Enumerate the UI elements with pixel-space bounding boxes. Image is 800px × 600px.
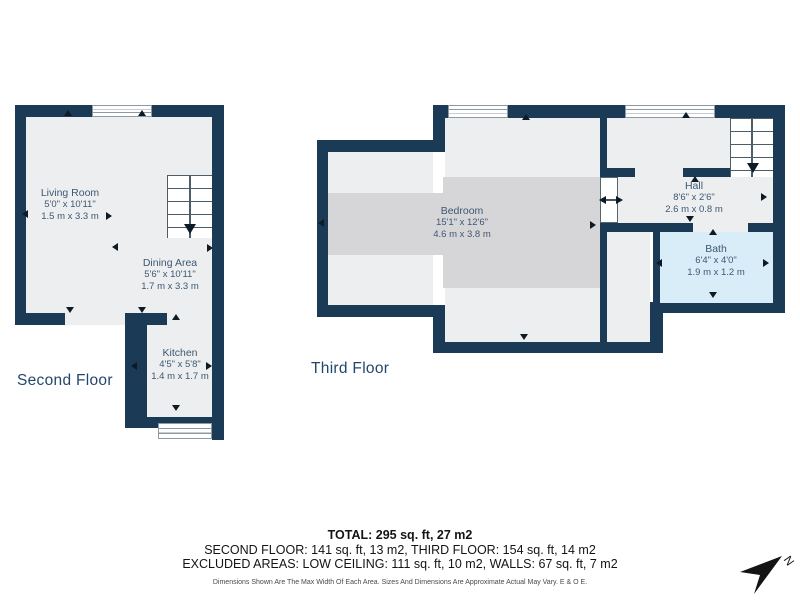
room-dim-imperial: 8'6" x 2'6" [665,192,723,204]
dimension-marker [318,219,324,227]
wall-segment [600,223,693,232]
dimension-marker [656,259,662,267]
dimension-marker [66,307,74,313]
dimension-marker [682,112,690,118]
room-name: Bedroom [433,205,491,217]
room-dim-metric: 2.6 m x 0.8 m [665,204,723,216]
floor-title-second: Second Floor [17,372,113,390]
low-ceiling-area [328,193,445,255]
room-dim-imperial: 15'1" x 12'6" [433,217,491,229]
dimension-marker [691,176,699,182]
room-label-living-room: Living Room 5'0" x 10'11" 1.5 m x 3.3 m [41,187,99,223]
window [158,423,212,439]
dimension-marker [207,244,213,252]
floor-area-door-opening [635,168,683,177]
floor-area-strip [607,232,650,342]
dimension-marker [206,362,212,370]
room-name: Living Room [41,187,99,199]
stairs-direction-arrow [184,224,196,234]
dimension-marker [22,210,28,218]
wall-segment [317,140,445,152]
sliding-door-arrow [599,194,623,206]
room-dim-metric: 1.4 m x 1.7 m [151,371,209,383]
dimension-marker [106,212,112,220]
room-dim-metric: 4.6 m x 3.8 m [433,229,491,241]
summary-total: TOTAL: 295 sq. ft, 27 m2 [0,528,800,543]
dimension-marker [131,362,137,370]
room-label-bedroom: Bedroom 15'1" x 12'6" 4.6 m x 3.8 m [433,205,491,241]
dimension-marker [112,243,118,251]
wall-segment [600,118,607,177]
room-label-bath: Bath 6'4" x 4'0" 1.9 m x 1.2 m [687,243,745,279]
dimension-marker [138,307,146,313]
wall-segment [748,223,773,232]
summary-by-floor: SECOND FLOOR: 141 sq. ft, 13 m2, THIRD F… [0,543,800,557]
room-name: Bath [687,243,745,255]
dimension-marker [172,314,180,320]
dimension-marker [763,259,769,267]
wall-segment [317,140,328,317]
dimension-marker [686,216,694,222]
room-label-kitchen: Kitchen 4'5" x 5'8" 1.4 m x 1.7 m [151,347,209,383]
dimension-marker [64,110,72,116]
stairs-direction-arrow [747,163,759,173]
summary-disclaimer: Dimensions Shown Are The Max Width Of Ea… [0,579,800,586]
wall-segment [317,305,445,317]
dimension-marker [590,221,596,229]
wall-segment [773,105,785,313]
wall-segment [653,303,785,313]
dimension-marker [520,334,528,340]
room-dim-metric: 1.5 m x 3.3 m [41,211,99,223]
floorplan-canvas: Living Room 5'0" x 10'11" 1.5 m x 3.3 m … [0,0,800,600]
dimension-marker [709,229,717,235]
floor-area-door-opening [693,223,748,232]
wall-segment [433,342,663,353]
dimension-marker [709,292,717,298]
room-label-dining-area: Dining Area 5'6" x 10'11" 1.7 m x 3.3 m [141,257,199,293]
room-dim-metric: 1.7 m x 3.3 m [141,281,199,293]
floor-title-third: Third Floor [311,360,389,378]
dimension-marker [522,114,530,120]
room-dim-metric: 1.9 m x 1.2 m [687,267,745,279]
compass-north-label: N [781,553,796,568]
wall-segment [607,168,635,177]
room-label-hall: Hall 8'6" x 2'6" 2.6 m x 0.8 m [665,180,723,216]
floor-area-top-room [607,118,730,168]
wall-segment [212,105,224,440]
compass-north-arrow: N [736,548,796,598]
wall-segment [600,223,607,342]
dimension-marker [138,110,146,116]
room-name: Kitchen [151,347,209,359]
room-name: Dining Area [141,257,199,269]
wall-segment [125,313,147,428]
summary-excluded: EXCLUDED AREAS: LOW CEILING: 111 sq. ft,… [0,557,800,571]
room-dim-imperial: 6'4" x 4'0" [687,255,745,267]
window [448,105,508,118]
room-dim-imperial: 5'0" x 10'11" [41,199,99,211]
room-dim-imperial: 5'6" x 10'11" [141,269,199,281]
floor-area-door-opening [65,313,125,325]
area-summary: TOTAL: 295 sq. ft, 27 m2 SECOND FLOOR: 1… [0,528,800,586]
wall-segment [15,313,65,325]
dimension-marker [172,405,180,411]
room-dim-imperial: 4'5" x 5'8" [151,359,209,371]
dimension-marker [761,193,767,201]
window [625,105,715,118]
